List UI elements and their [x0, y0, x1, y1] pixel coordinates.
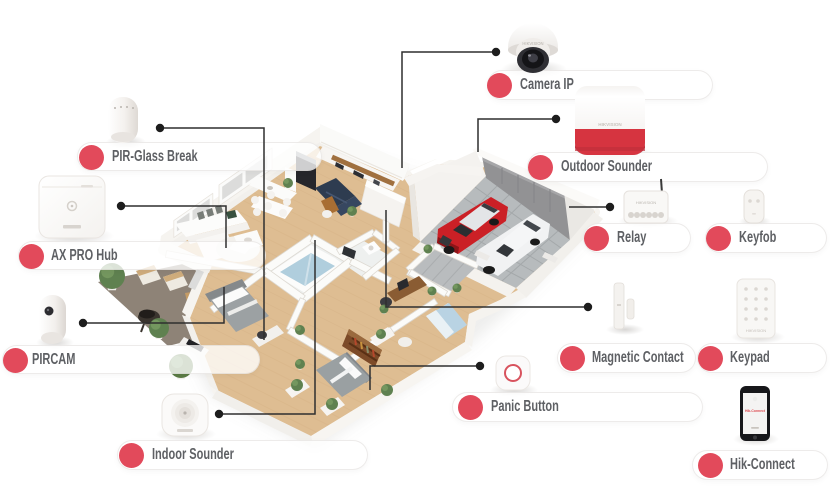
svg-text:HIKVISION: HIKVISION	[636, 200, 656, 205]
svg-text:HIKVISION: HIKVISION	[598, 122, 622, 127]
svg-text:HIKVISION: HIKVISION	[746, 328, 766, 333]
svg-text:Hik-Connect: Hik-Connect	[745, 409, 766, 413]
svg-text:HIKVISION: HIKVISION	[522, 41, 543, 46]
